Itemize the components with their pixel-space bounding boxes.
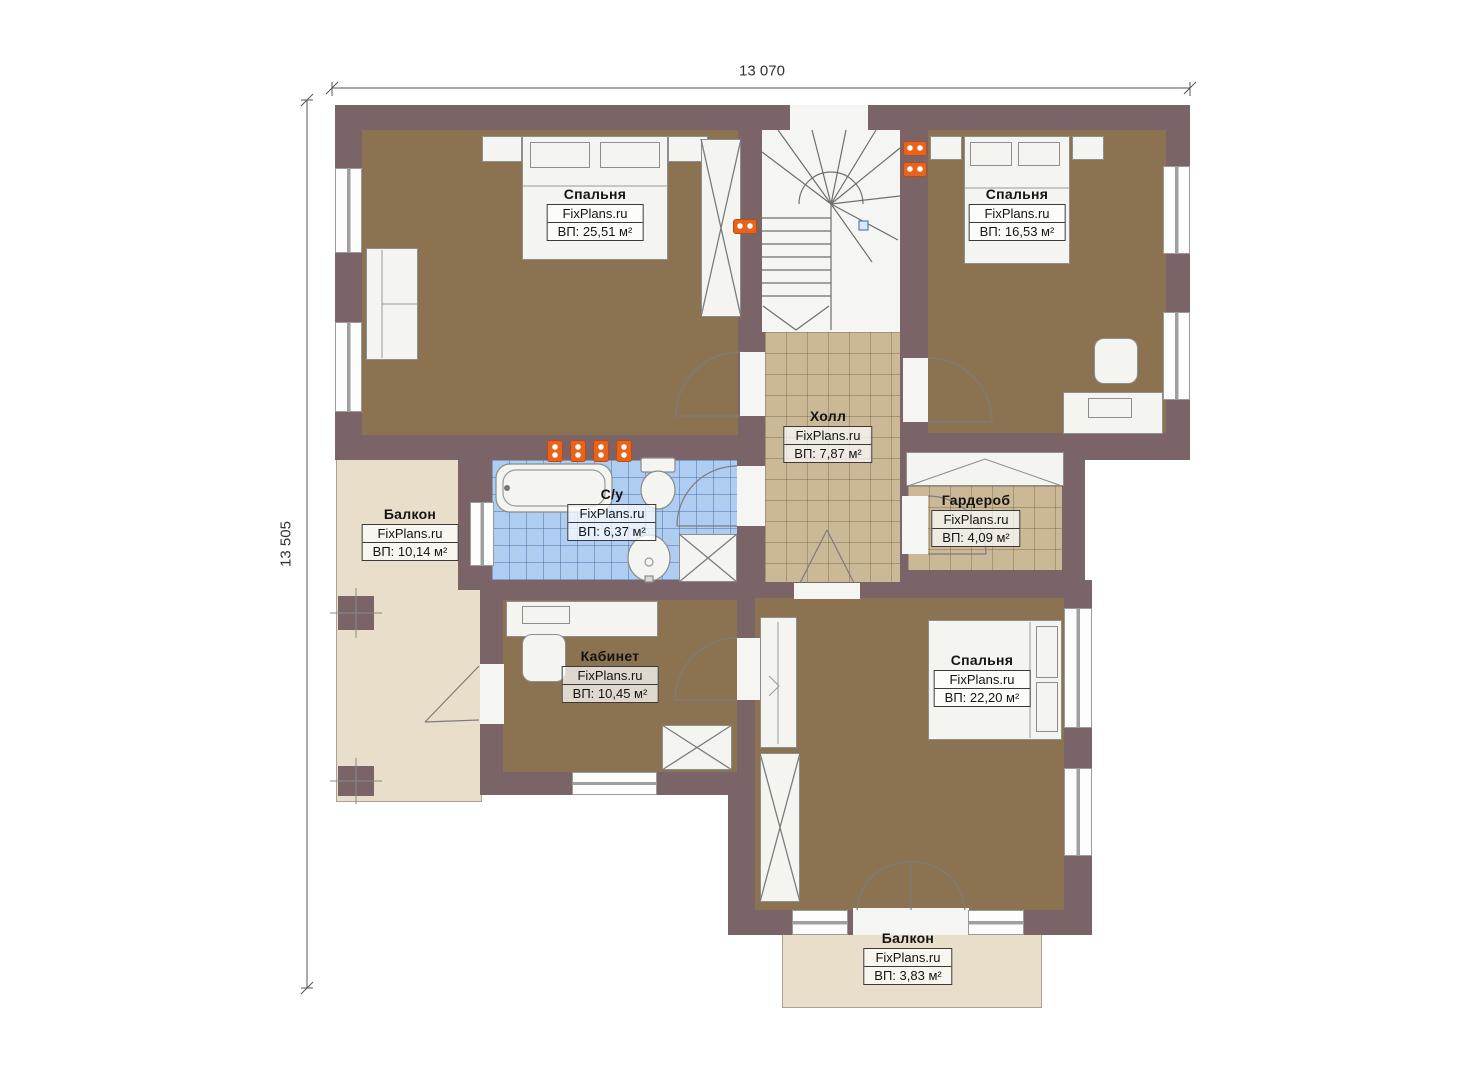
room-brand: FixPlans.ru: [784, 427, 871, 444]
door-opening: [902, 496, 928, 554]
wall-lamp-icon: [616, 440, 632, 462]
pillow: [1036, 626, 1058, 678]
room-brand: FixPlans.ru: [568, 505, 655, 522]
room-info-box: FixPlans.ru ВП: 25,51 м²: [547, 204, 644, 241]
room-name: Балкон: [384, 506, 436, 522]
room-name: Кабинет: [581, 648, 640, 664]
door-opening: [740, 352, 765, 416]
room-area: ВП: 3,83 м²: [864, 966, 951, 984]
wall-lamp-icon: [547, 440, 563, 462]
nightstand: [1072, 136, 1104, 160]
room-brand: FixPlans.ru: [864, 949, 951, 966]
room-name: Спальня: [986, 186, 1049, 202]
room-area: ВП: 7,87 м²: [784, 444, 871, 462]
floor-plan-canvas: Спальня FixPlans.ru ВП: 25,51 м² Спальня…: [0, 0, 1474, 1080]
room-name: Холл: [810, 408, 846, 424]
mirror-cabinet: [760, 617, 797, 748]
room-name: Спальня: [951, 652, 1014, 668]
room-info-box: FixPlans.ru ВП: 4,09 м²: [931, 510, 1020, 547]
window: [572, 772, 657, 795]
room-info-box: FixPlans.ru ВП: 22,20 м²: [934, 670, 1031, 707]
room-info-box: FixPlans.ru ВП: 10,14 м²: [362, 524, 459, 561]
pillow: [970, 142, 1012, 166]
pillow: [600, 142, 660, 168]
room-area: ВП: 10,14 м²: [363, 542, 458, 560]
window: [1163, 312, 1190, 400]
room-area: ВП: 22,20 м²: [935, 688, 1030, 706]
wall-lamp-icon: [570, 440, 586, 462]
room-area: ВП: 10,45 м²: [563, 684, 658, 702]
window: [335, 322, 362, 412]
wall-lamp-icon: [903, 141, 927, 156]
room-info-box: FixPlans.ru ВП: 3,83 м²: [863, 948, 952, 985]
window: [470, 502, 494, 566]
wardrobe-x: [760, 753, 800, 902]
window: [1064, 608, 1092, 728]
wardrobe-x: [662, 725, 732, 770]
room-brand: FixPlans.ru: [932, 511, 1019, 528]
room-name: С/у: [601, 486, 624, 502]
window: [968, 910, 1024, 935]
nightstand: [930, 136, 962, 160]
door-opening: [480, 664, 504, 724]
window: [1064, 768, 1092, 856]
pillow: [530, 142, 590, 168]
balcony-pillar: [338, 596, 374, 630]
room-info-box: FixPlans.ru ВП: 10,45 м²: [562, 666, 659, 703]
stair-top-opening: [790, 105, 868, 131]
room-label-balcony-bottom: Балкон FixPlans.ru ВП: 3,83 м²: [863, 930, 952, 985]
room-label-bedroom-1: Спальня FixPlans.ru ВП: 25,51 м²: [547, 186, 644, 241]
printer: [1088, 398, 1132, 418]
wardrobe-rail-shelf: [906, 452, 1064, 486]
pillow: [1018, 142, 1060, 166]
room-info-box: FixPlans.ru ВП: 7,87 м²: [783, 426, 872, 463]
room-brand: FixPlans.ru: [935, 671, 1030, 688]
door-opening: [737, 466, 765, 526]
room-info-box: FixPlans.ru ВП: 16,53 м²: [969, 204, 1066, 241]
desk-chair: [1094, 338, 1138, 384]
room-name: Гардероб: [942, 492, 1011, 508]
window: [792, 910, 848, 935]
pillow: [1036, 682, 1058, 732]
sofa: [366, 248, 418, 360]
room-label-bedroom-2: Спальня FixPlans.ru ВП: 16,53 м²: [969, 186, 1066, 241]
shower-cabin: [679, 534, 737, 582]
room-area: ВП: 25,51 м²: [548, 222, 643, 240]
room-area: ВП: 4,09 м²: [932, 528, 1019, 546]
wall-lamp-icon: [903, 162, 927, 177]
room-brand: FixPlans.ru: [970, 205, 1065, 222]
room-label-bedroom-3: Спальня FixPlans.ru ВП: 22,20 м²: [934, 652, 1031, 707]
room-label-bathroom: С/у FixPlans.ru ВП: 6,37 м²: [567, 486, 656, 541]
dimension-width-label: 13 070: [739, 63, 785, 80]
room-info-box: FixPlans.ru ВП: 6,37 м²: [567, 504, 656, 541]
dimension-height-label: 13 505: [278, 521, 295, 567]
staircase-area: [762, 130, 900, 332]
window: [1163, 166, 1190, 254]
room-brand: FixPlans.ru: [548, 205, 643, 222]
nightstand: [482, 136, 522, 162]
room-brand: FixPlans.ru: [363, 525, 458, 542]
room-name: Балкон: [882, 930, 934, 946]
door-opening: [794, 583, 860, 599]
room-label-hall: Холл FixPlans.ru ВП: 7,87 м²: [783, 408, 872, 463]
wall-lamp-icon: [733, 219, 757, 234]
door-opening: [903, 358, 928, 422]
desk-chair: [522, 634, 566, 682]
room-area: ВП: 16,53 м²: [970, 222, 1065, 240]
window: [335, 168, 362, 253]
wall-lamp-icon: [593, 440, 609, 462]
room-label-wardrobe: Гардероб FixPlans.ru ВП: 4,09 м²: [931, 492, 1020, 547]
balcony-pillar: [338, 766, 374, 796]
room-brand: FixPlans.ru: [563, 667, 658, 684]
room-label-balcony-left: Балкон FixPlans.ru ВП: 10,14 м²: [362, 506, 459, 561]
room-label-office: Кабинет FixPlans.ru ВП: 10,45 м²: [562, 648, 659, 703]
room-area: ВП: 6,37 м²: [568, 522, 655, 540]
room-name: Спальня: [564, 186, 627, 202]
printer: [522, 606, 570, 624]
